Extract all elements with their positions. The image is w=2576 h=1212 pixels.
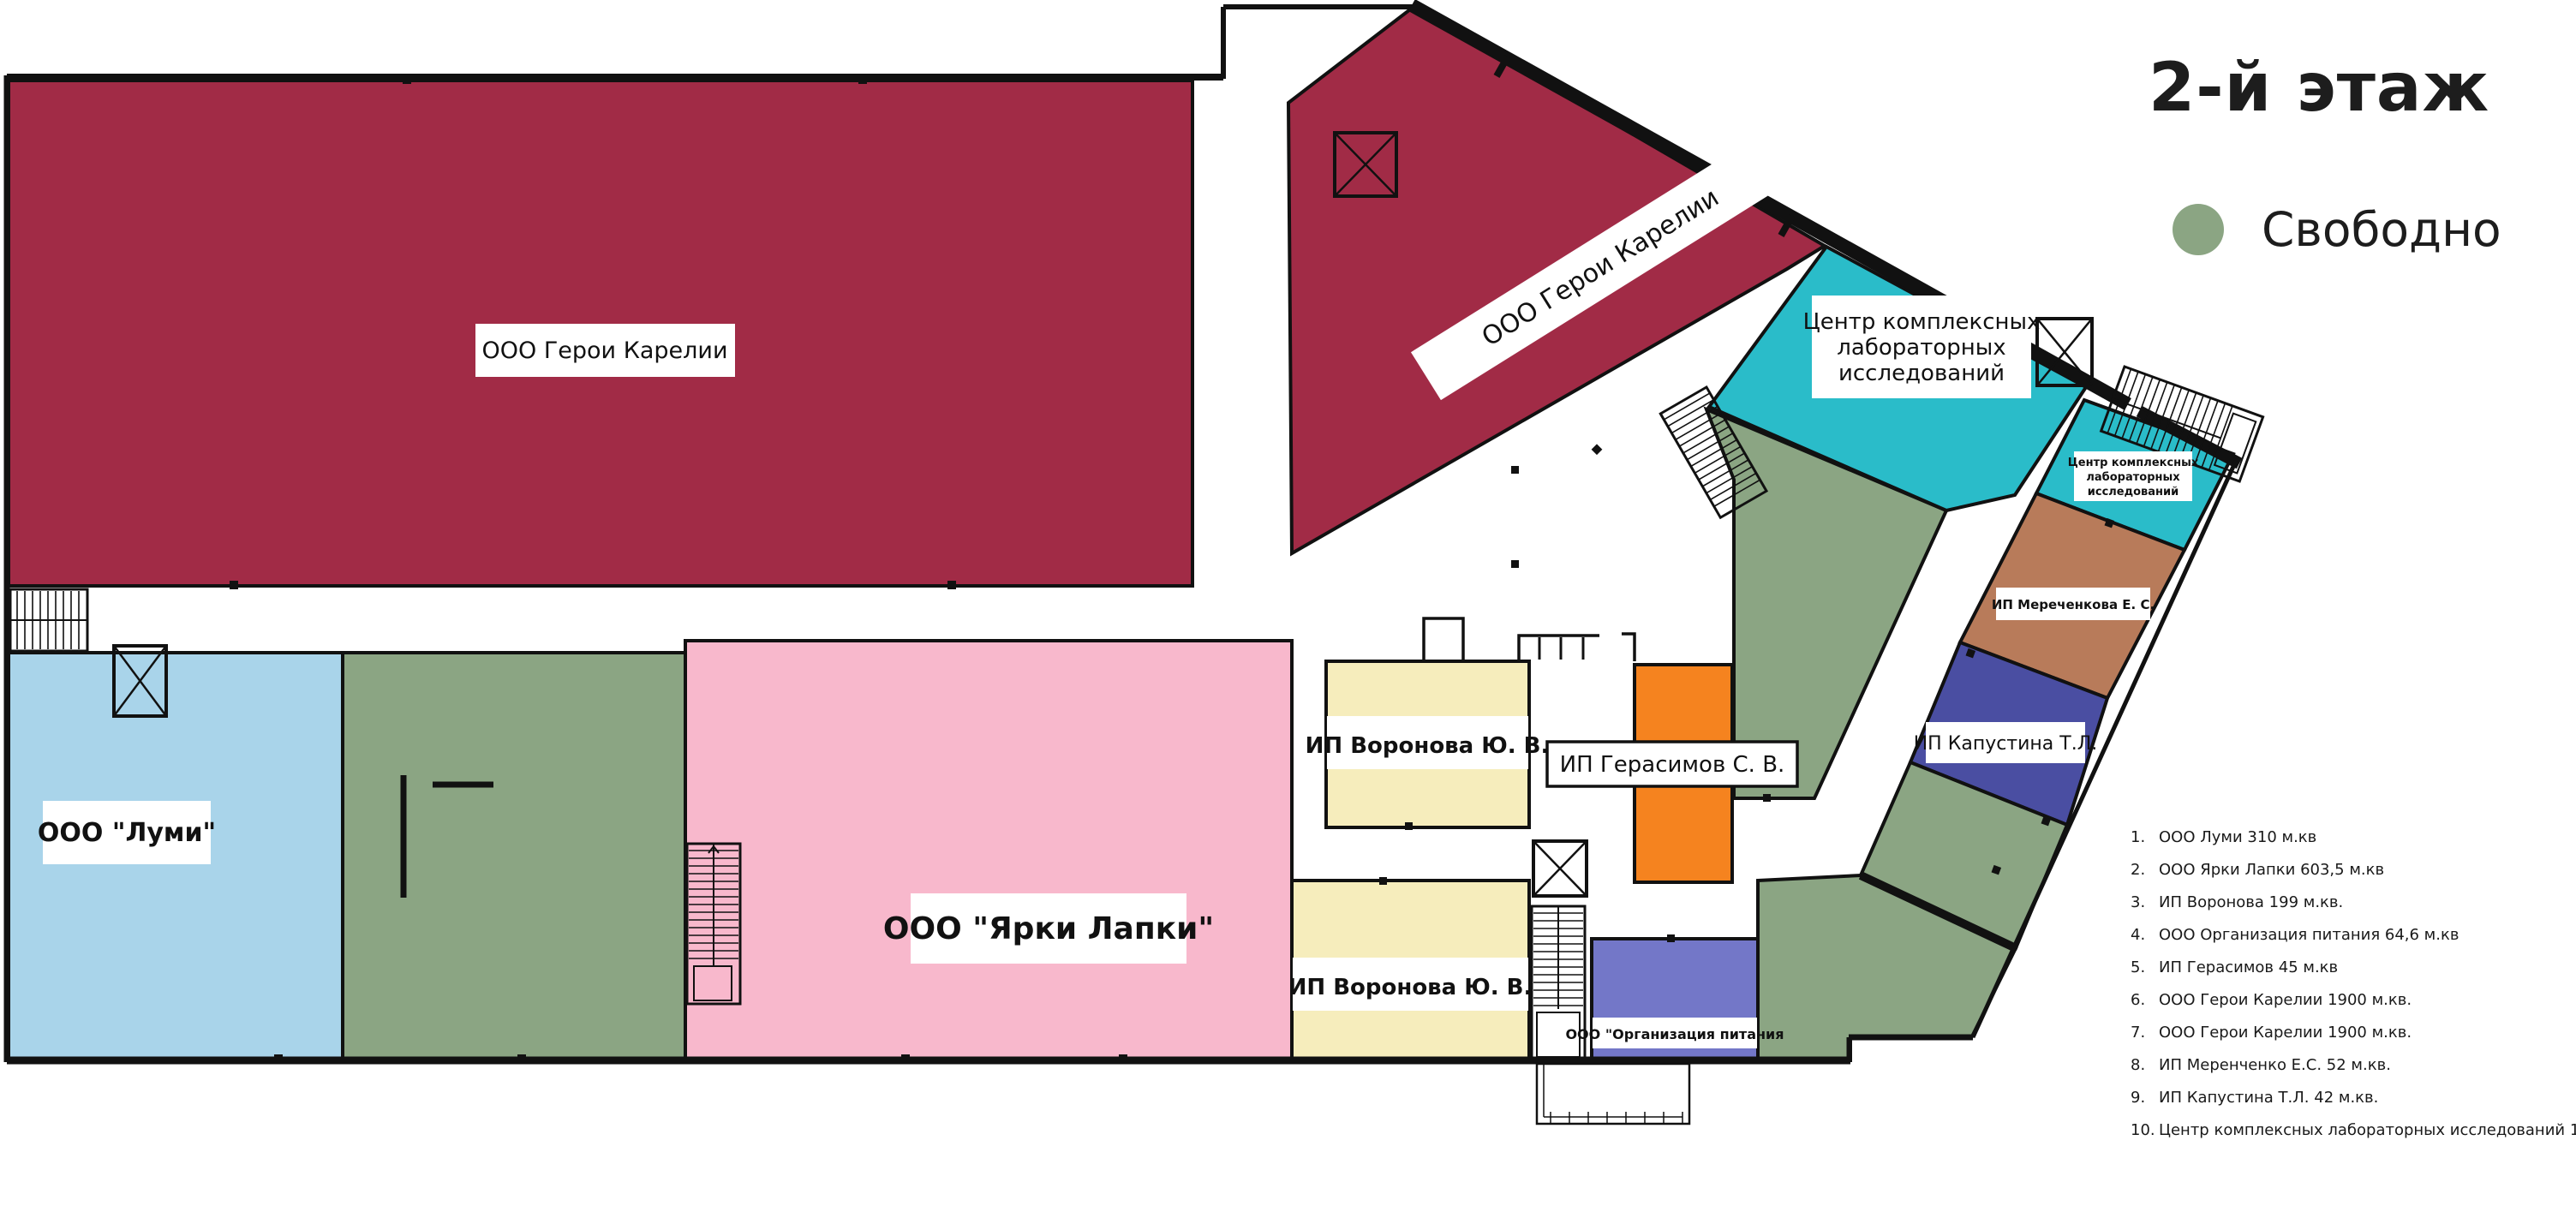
porch-glyph [1537,1064,1689,1124]
tenant-list-item: 5. ИП Герасимов 45 м.кв [2131,958,2572,990]
tenant-list-item: 10. Центр комплексных лабораторных иссле… [2131,1120,2572,1153]
label-clinic-small-line1: Центр комплексных [2068,457,2199,469]
item-label: ИП Капустина Т.Л. 42 м.кв. [2159,1088,2572,1108]
area-free-1 [343,653,685,1060]
item-label: Центр комплексных лабораторных исследова… [2159,1120,2576,1141]
tenant-list-item: 2. ООО Ярки Лапки 603,5 м.кв [2131,860,2572,893]
item-number: 4. [2131,925,2159,946]
item-label: ИП Герасимов 45 м.кв [2159,958,2572,978]
label-clinic-big-line2: лабораторных [1837,335,2005,361]
item-number: 5. [2131,958,2159,978]
tenant-list-item: 3. ИП Воронова 199 м.кв. [2131,893,2572,925]
item-label: ИП Меренченко Е.С. 52 м.кв. [2159,1055,2572,1076]
label-clinic-big-line3: исследований [1838,361,2005,386]
label-org-pitaniya-text: ООО "Организация питания [1565,1026,1784,1042]
item-number: 8. [2131,1055,2159,1076]
legend: Свободно [2173,202,2501,257]
label-geroi-1: ООО Герои Карелии [475,324,735,377]
item-number: 6. [2131,990,2159,1011]
legend-free-dot [2173,204,2224,255]
tenant-list-item: 1. ООО Луми 310 м.кв [2131,827,2572,860]
label-merechenkova: ИП Мереченкова Е. С. [1992,588,2155,620]
label-yarki: ООО "Ярки Лапки" [883,893,1214,964]
item-label: ООО Ярки Лапки 603,5 м.кв [2159,860,2572,881]
item-label: ООО Организация питания 64,6 м.кв [2159,925,2572,946]
item-number: 2. [2131,860,2159,881]
item-number: 9. [2131,1088,2159,1108]
staircase-left-glyph [10,589,87,651]
label-voronova-top: ИП Воронова Ю. В. [1306,716,1550,769]
label-geroi-1-text: ООО Герои Карелии [481,337,727,364]
label-lumi-text: ООО "Луми" [38,818,216,848]
tenant-list-item: 4. ООО Организация питания 64,6 м.кв [2131,925,2572,958]
label-clinic-big-line1: Центр комплексных [1803,309,2041,335]
item-number: 3. [2131,893,2159,913]
label-clinic-small-line3: исследований [2088,486,2179,499]
label-clinic-small-line2: лабораторных [2086,471,2180,484]
label-gerasimov-text: ИП Герасимов С. В. [1560,752,1785,778]
label-kapustina-text: ИП Капустина Т.Л. [1914,733,2098,755]
tenant-list-item: 7. ООО Герои Карелии 1900 м.кв. [2131,1023,2572,1055]
label-merechenkova-text: ИП Мереченкова Е. С. [1992,597,2155,612]
floor-plan-page: ООО Герои Карелии ООО Герои Карелии ООО … [0,0,2576,1212]
page-title: 2-й этаж [2149,50,2560,127]
label-kapustina: ИП Капустина Т.Л. [1914,722,2098,763]
item-number: 10. [2131,1120,2159,1141]
item-label: ИП Воронова 199 м.кв. [2159,893,2572,913]
tenant-list-item: 8. ИП Меренченко Е.С. 52 м.кв. [2131,1055,2572,1088]
label-clinic-big: Центр комплексных лабораторных исследова… [1803,296,2041,398]
tenant-list-item: 6. ООО Герои Карелии 1900 м.кв. [2131,990,2572,1023]
item-label: ООО Луми 310 м.кв [2159,827,2572,848]
legend-free-label: Свободно [2262,202,2501,257]
elevator-center-glyph [1533,841,1587,896]
inner-walls [1424,618,1635,661]
label-voronova-top-text: ИП Воронова Ю. В. [1306,733,1550,759]
label-gerasimov: ИП Герасимов С. В. [1547,742,1797,786]
tenant-list: 1. ООО Луми 310 м.кв 2. ООО Ярки Лапки 6… [2131,827,2572,1153]
label-org-pitaniya: ООО "Организация питания [1565,1018,1784,1048]
item-number: 1. [2131,827,2159,848]
area-yarki-lapki [685,641,1292,1060]
item-label: ООО Герои Карелии 1900 м.кв. [2159,1023,2572,1043]
item-label: ООО Герои Карелии 1900 м.кв. [2159,990,2572,1011]
item-number: 7. [2131,1023,2159,1043]
label-voronova-bottom: ИП Воронова Ю. В. [1288,958,1533,1011]
tenant-list-item: 9. ИП Капустина Т.Л. 42 м.кв. [2131,1088,2572,1120]
label-lumi: ООО "Луми" [38,801,216,864]
label-voronova-bottom-text: ИП Воронова Ю. В. [1288,975,1533,1000]
label-yarki-text: ООО "Ярки Лапки" [883,911,1214,946]
label-clinic-small: Центр комплексных лабораторных исследова… [2068,451,2199,501]
